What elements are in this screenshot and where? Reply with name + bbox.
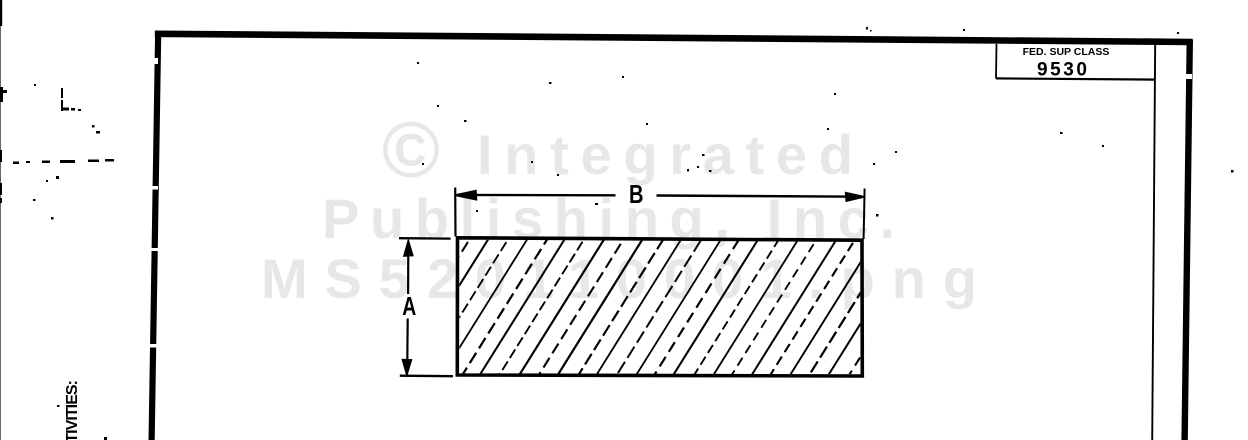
- svg-text:©: ©: [382, 105, 440, 194]
- svg-text:ACTIVITIES:: ACTIVITIES:: [64, 380, 81, 440]
- svg-text:B: B: [629, 179, 644, 209]
- svg-text:FED. SUP CLASS: FED. SUP CLASS: [1023, 46, 1110, 58]
- svg-text:A: A: [402, 293, 416, 321]
